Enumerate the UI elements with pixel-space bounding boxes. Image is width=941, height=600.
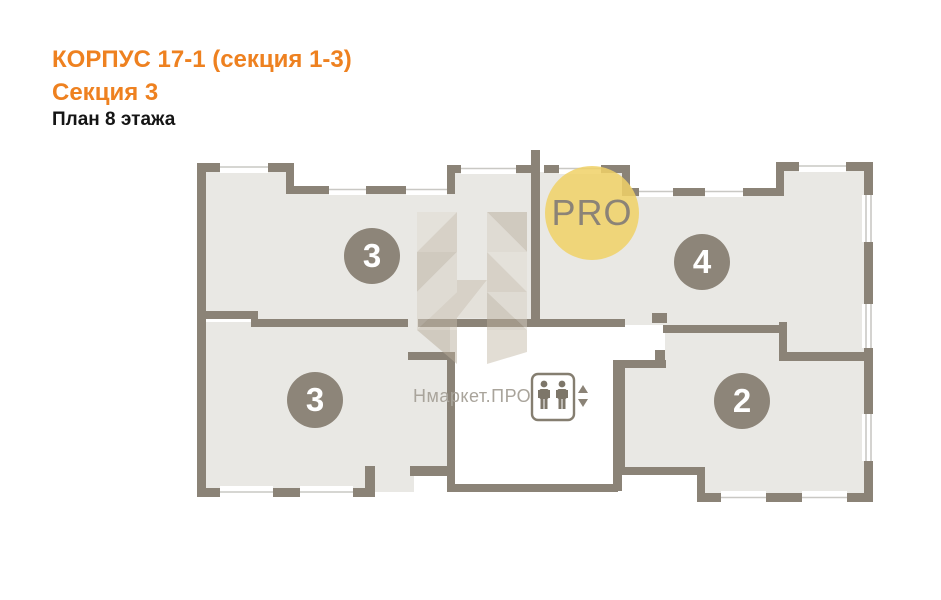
down-arrow-icon — [578, 399, 588, 407]
apartment-badge-top-right[interactable]: 4 — [674, 234, 730, 290]
apartment-badge-top-left[interactable]: 3 — [344, 228, 400, 284]
pro-logo-watermark: PRO — [545, 166, 639, 260]
apartment-badge-bottom-left[interactable]: 3 — [287, 372, 343, 428]
apartment-badge-bottom-right[interactable]: 2 — [714, 373, 770, 429]
floor-plan-page: КОРПУС 17-1 (секция 1-3) Секция 3 План 8… — [0, 0, 941, 600]
floorplan-drawing — [0, 0, 941, 600]
elevator-icon — [532, 374, 588, 420]
up-arrow-icon — [578, 385, 588, 393]
brand-watermark-text: Нмаркет.ПРО — [413, 386, 531, 407]
